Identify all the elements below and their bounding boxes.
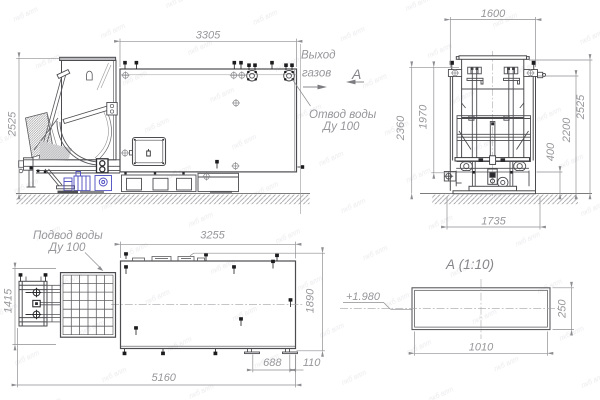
svg-text:+1.980: +1.980	[346, 291, 381, 303]
svg-text:Ду 100: Ду 100	[321, 121, 360, 133]
svg-text:1890: 1890	[305, 288, 317, 313]
svg-text:2360: 2360	[395, 115, 407, 141]
svg-text:А (1:10): А (1:10)	[445, 257, 494, 272]
svg-text:1970: 1970	[418, 104, 430, 129]
svg-text:Отвод воды: Отвод воды	[309, 109, 377, 121]
svg-text:газов: газов	[302, 68, 331, 80]
svg-text:1600: 1600	[481, 8, 506, 20]
svg-text:1415: 1415	[3, 288, 15, 313]
svg-text:А: А	[351, 66, 361, 82]
svg-text:2525: 2525	[7, 111, 19, 137]
svg-text:1735: 1735	[481, 215, 506, 227]
svg-text:2200: 2200	[561, 117, 573, 143]
svg-text:1010: 1010	[469, 342, 494, 354]
svg-text:110: 110	[303, 357, 321, 369]
svg-text:Ду 100: Ду 100	[47, 242, 86, 254]
svg-text:3305: 3305	[196, 30, 221, 42]
svg-text:2525: 2525	[575, 94, 587, 120]
svg-text:688: 688	[263, 357, 282, 369]
svg-text:400: 400	[545, 142, 557, 161]
svg-text:3255: 3255	[200, 230, 225, 242]
svg-text:Выход: Выход	[301, 50, 336, 62]
svg-text:Подвод воды: Подвод воды	[33, 230, 103, 242]
svg-text:5160: 5160	[151, 372, 176, 384]
svg-text:250: 250	[557, 299, 569, 319]
